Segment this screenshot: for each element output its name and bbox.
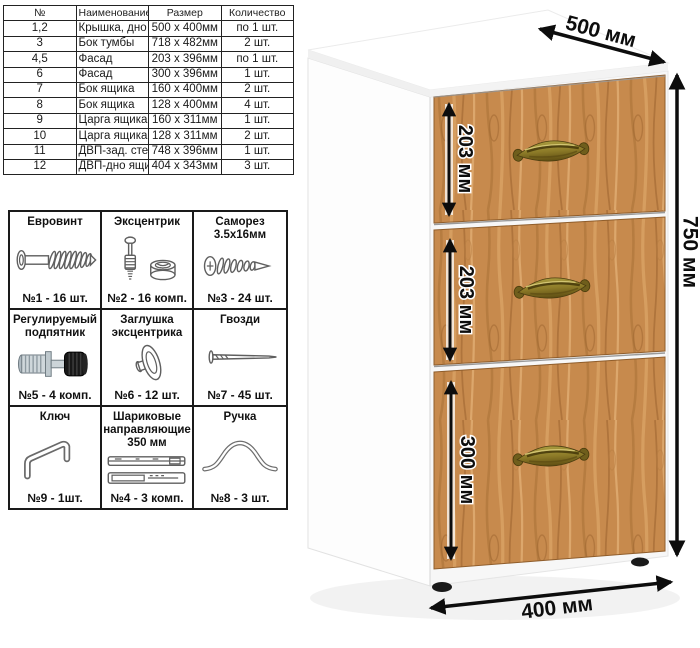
assembly-instruction-sheet: № Наименование детали Размер Количество … bbox=[0, 0, 700, 648]
dimension-label-drawer1: 203 мм bbox=[454, 125, 476, 194]
cabinet-foot bbox=[631, 558, 649, 567]
dimension-label-height: 750 мм bbox=[679, 216, 700, 288]
dimension-label-drawer3: 300 мм bbox=[456, 436, 478, 505]
dimension-label-drawer2: 203 мм bbox=[455, 266, 477, 335]
cabinet-illustration: 500 мм 750 мм 400 мм 203 мм 203 мм 300 м… bbox=[0, 0, 700, 648]
cabinet-shadow bbox=[310, 576, 680, 620]
cabinet-left-panel bbox=[308, 58, 430, 586]
cabinet-foot bbox=[432, 582, 452, 592]
